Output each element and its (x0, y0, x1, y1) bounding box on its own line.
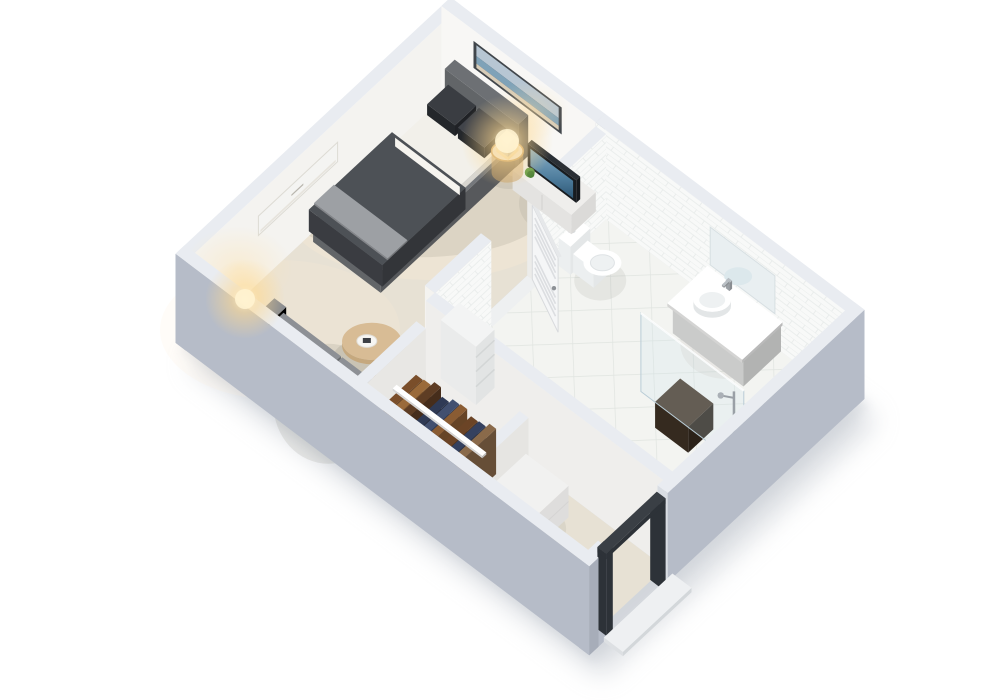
floorplan-3d-render (0, 0, 1000, 700)
floorplan-svg (0, 0, 1000, 700)
